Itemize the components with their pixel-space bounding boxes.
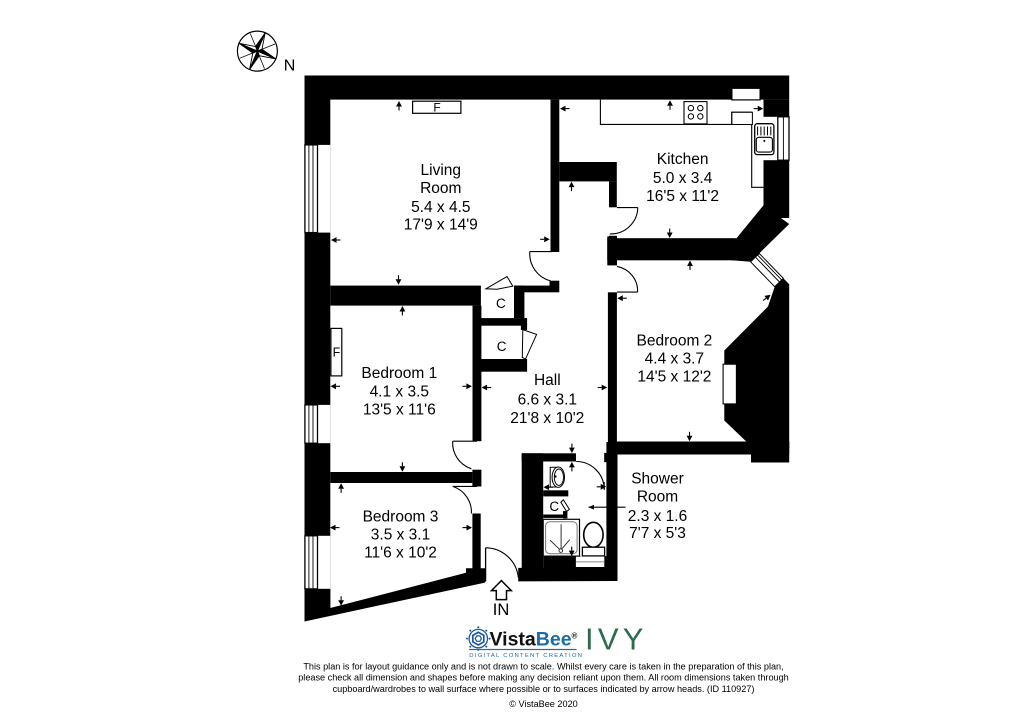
svg-text:cupboard/wardrobes to wall sur: cupboard/wardrobes to wall surface where… — [333, 684, 755, 694]
svg-text:11'6 x 10'2: 11'6 x 10'2 — [364, 544, 437, 561]
svg-text:13'5 x 11'6: 13'5 x 11'6 — [363, 402, 436, 419]
svg-text:VistaBee®: VistaBee® — [490, 629, 578, 651]
svg-text:4.1 x 3.5: 4.1 x 3.5 — [370, 383, 429, 400]
svg-text:IN: IN — [493, 601, 510, 619]
svg-text:C: C — [496, 296, 506, 311]
svg-text:3.5 x 3.1: 3.5 x 3.1 — [371, 526, 430, 543]
svg-text:21'8 x 10'2: 21'8 x 10'2 — [510, 410, 584, 427]
svg-text:5.4 x 4.5: 5.4 x 4.5 — [411, 199, 470, 216]
svg-text:Kitchen: Kitchen — [657, 151, 709, 168]
svg-text:Shower: Shower — [631, 471, 684, 488]
svg-text:Bedroom 2: Bedroom 2 — [636, 332, 712, 349]
svg-text:C: C — [549, 499, 559, 514]
svg-text:F: F — [333, 346, 341, 360]
svg-text:Room: Room — [637, 488, 678, 505]
svg-text:Bedroom 1: Bedroom 1 — [361, 365, 437, 382]
svg-text:16'5 x 11'2: 16'5 x 11'2 — [646, 188, 719, 205]
svg-text:N: N — [284, 57, 296, 74]
svg-text:7'7 x 5'3: 7'7 x 5'3 — [629, 525, 686, 542]
svg-text:Room: Room — [420, 180, 461, 197]
svg-text:© VistaBee 2020: © VistaBee 2020 — [509, 699, 577, 709]
svg-text:17'9 x 14'9: 17'9 x 14'9 — [404, 217, 478, 234]
svg-text:Living: Living — [421, 162, 462, 179]
svg-text:2.3 x 1.6: 2.3 x 1.6 — [628, 508, 687, 525]
svg-text:please check all dimension and: please check all dimension and shapes be… — [298, 673, 789, 683]
svg-text:C: C — [497, 339, 507, 354]
svg-text:Hall: Hall — [534, 372, 561, 389]
svg-text:5.0 x 3.4: 5.0 x 3.4 — [653, 170, 713, 187]
svg-text:IVY: IVY — [585, 621, 648, 656]
svg-text:4.4 x 3.7: 4.4 x 3.7 — [645, 351, 704, 368]
svg-text:14'5 x 12'2: 14'5 x 12'2 — [637, 368, 711, 385]
svg-text:DIGITAL CONTENT CREATION: DIGITAL CONTENT CREATION — [469, 653, 583, 659]
svg-text:F: F — [433, 101, 440, 115]
svg-text:6.6 x 3.1: 6.6 x 3.1 — [518, 391, 577, 408]
svg-text:Bedroom 3: Bedroom 3 — [363, 509, 439, 526]
svg-text:This plan is for layout guidan: This plan is for layout guidance only an… — [303, 661, 783, 671]
